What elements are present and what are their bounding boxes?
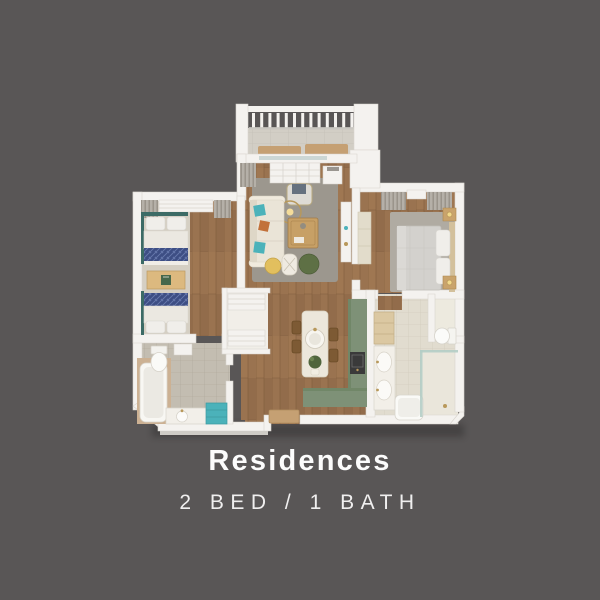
linen-cabinet bbox=[374, 312, 394, 344]
window-shelf bbox=[407, 190, 426, 199]
side-cabinet bbox=[323, 166, 342, 184]
sink bbox=[177, 411, 188, 422]
shelf-unit bbox=[270, 163, 320, 183]
console-table bbox=[341, 202, 351, 262]
double-bed bbox=[397, 226, 450, 290]
balcony-top-rail bbox=[247, 106, 357, 112]
shower-glass bbox=[420, 350, 458, 353]
kitchen-island bbox=[302, 311, 328, 377]
bedroom-bench bbox=[147, 271, 185, 289]
window-shelf bbox=[159, 200, 213, 212]
pouf-green bbox=[299, 254, 319, 274]
bed-pillow bbox=[146, 321, 165, 333]
toilet bbox=[151, 346, 167, 372]
wall bbox=[300, 415, 458, 424]
dresser bbox=[358, 212, 371, 264]
pouf-white bbox=[282, 254, 297, 275]
accent-chair bbox=[287, 184, 312, 205]
closet-wall bbox=[222, 288, 270, 293]
faucet bbox=[376, 361, 379, 364]
oven bbox=[350, 352, 365, 374]
wall bbox=[133, 192, 245, 201]
plan-caption: Residences 2 BED / 1 BATH bbox=[0, 444, 600, 515]
entry bbox=[269, 410, 299, 423]
curtain bbox=[427, 192, 452, 210]
pouf-yellow bbox=[265, 258, 281, 274]
curtain bbox=[240, 163, 256, 187]
bed-pillow bbox=[436, 230, 450, 256]
coffee-table bbox=[288, 218, 318, 248]
headboard-accent bbox=[141, 212, 188, 216]
faucet bbox=[313, 328, 317, 332]
vanity bbox=[166, 408, 207, 424]
wall bbox=[133, 334, 196, 343]
bathtub bbox=[140, 363, 167, 422]
balcony-pillar-left bbox=[236, 104, 248, 162]
bed-pillow bbox=[167, 217, 186, 230]
shower-drain bbox=[443, 404, 447, 408]
wall-face bbox=[160, 431, 268, 435]
balcony-pillar-right bbox=[354, 104, 378, 150]
closet-wall bbox=[222, 349, 270, 354]
plan-title: Residences bbox=[0, 444, 600, 478]
bathtub-2 bbox=[395, 395, 423, 420]
throw-pillow-teal bbox=[253, 204, 266, 217]
closet-shelf bbox=[228, 330, 265, 346]
bed-runner bbox=[144, 248, 188, 261]
balcony-door-glass bbox=[259, 156, 327, 160]
headboard-accent bbox=[141, 216, 144, 264]
plan-specs: 2 BED / 1 BATH bbox=[0, 491, 600, 515]
wall bbox=[237, 196, 245, 292]
wall bbox=[428, 294, 435, 342]
lamp bbox=[447, 212, 452, 217]
nightstand bbox=[443, 208, 456, 221]
bed-pillow bbox=[167, 321, 186, 333]
throw-pillow-teal bbox=[253, 241, 265, 253]
bath-shelf bbox=[174, 344, 192, 355]
shower-glass bbox=[420, 350, 423, 417]
toilet-2 bbox=[435, 328, 457, 344]
vanity-cabinet-teal bbox=[206, 403, 227, 424]
book bbox=[161, 275, 171, 285]
faucet bbox=[376, 389, 379, 392]
lamp bbox=[447, 280, 452, 285]
nightstand bbox=[443, 276, 456, 289]
door-threshold bbox=[378, 296, 402, 310]
floorplan-card: Residences 2 BED / 1 BATH bbox=[0, 0, 600, 600]
bed-runner bbox=[144, 293, 188, 306]
curtain bbox=[214, 200, 231, 218]
closet-shelf bbox=[228, 294, 265, 310]
sofa bbox=[249, 196, 285, 267]
closet-wall bbox=[222, 288, 227, 354]
shower-floor bbox=[421, 351, 458, 417]
throw-pillow-orange bbox=[258, 220, 270, 232]
bed-pillow bbox=[146, 217, 165, 230]
headboard-accent bbox=[141, 291, 144, 335]
double-vanity bbox=[374, 346, 395, 410]
faucet bbox=[181, 409, 184, 412]
door-mat bbox=[269, 410, 299, 423]
curtain bbox=[381, 192, 406, 210]
